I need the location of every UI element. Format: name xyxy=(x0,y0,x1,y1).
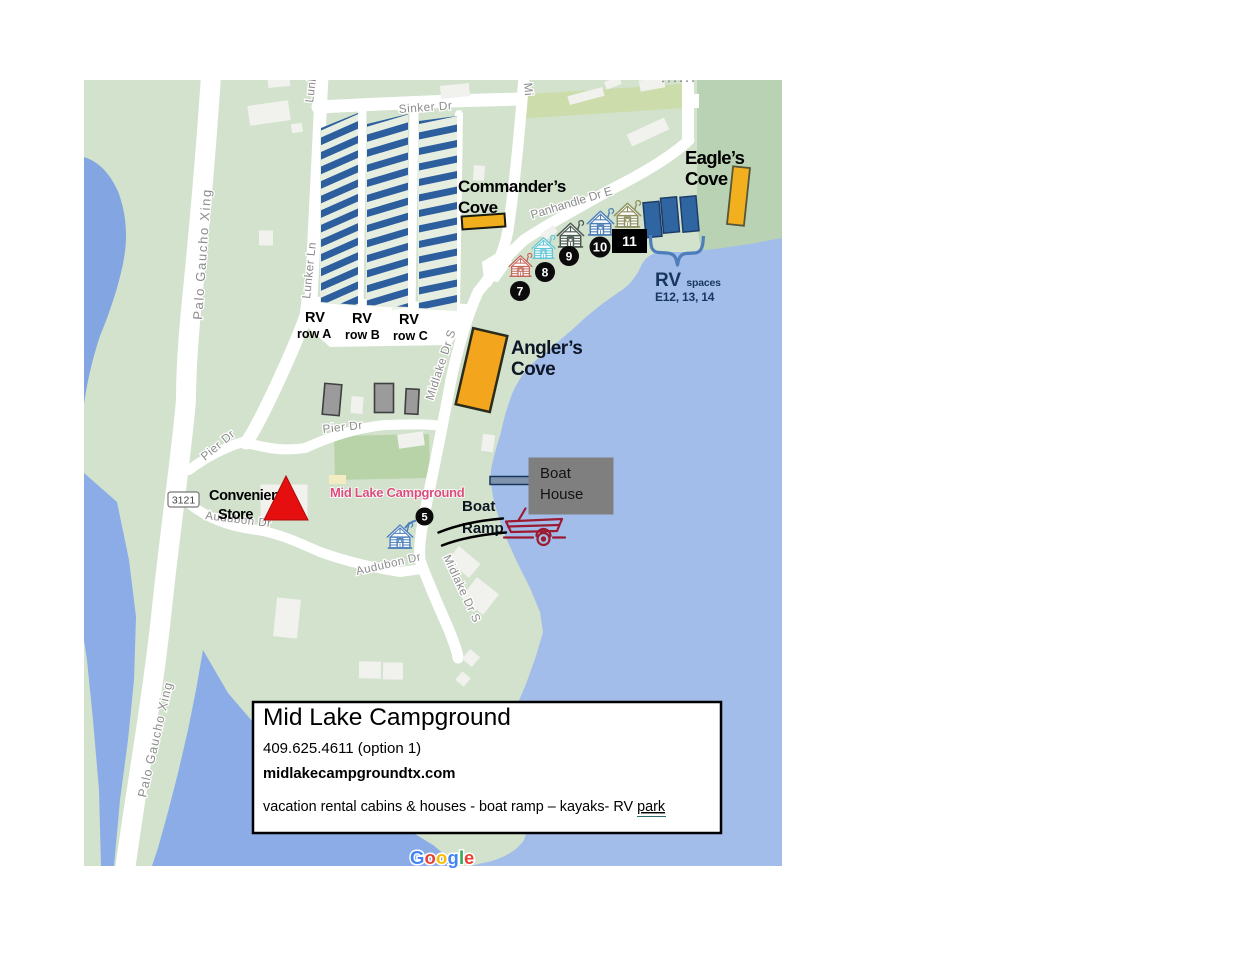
svg-text:Store: Store xyxy=(218,507,253,523)
svg-text:row C: row C xyxy=(393,329,428,343)
svg-text:Cove: Cove xyxy=(685,168,728,189)
svg-text:Commander’s: Commander’s xyxy=(458,177,566,196)
svg-text:3121: 3121 xyxy=(172,495,196,507)
svg-text:7: 7 xyxy=(517,285,524,299)
svg-text:midlakecampgroundtx.com: midlakecampgroundtx.com xyxy=(263,766,455,782)
svg-text:Eagle’s: Eagle’s xyxy=(685,147,745,168)
svg-text:Mid Lake Campground: Mid Lake Campground xyxy=(330,485,465,500)
svg-text:Boat: Boat xyxy=(540,465,572,482)
svg-text:o: o xyxy=(436,847,447,868)
svg-text:G: G xyxy=(410,847,424,868)
svg-text:RV: RV xyxy=(305,310,325,326)
svg-text:e: e xyxy=(464,847,474,868)
svg-text:House: House xyxy=(540,486,583,503)
svg-text:Mid Lake Campground: Mid Lake Campground xyxy=(263,704,511,731)
svg-text:Boat: Boat xyxy=(462,498,495,515)
svg-text:RV: RV xyxy=(352,311,372,327)
svg-text:Mi: Mi xyxy=(521,82,536,97)
svg-text:8: 8 xyxy=(542,266,549,280)
svg-text:RV: RV xyxy=(399,312,419,328)
svg-text:409.625.4611 (option 1): 409.625.4611 (option 1) xyxy=(263,740,421,757)
svg-text:11: 11 xyxy=(622,233,637,249)
svg-text:o: o xyxy=(425,847,436,868)
svg-text:g: g xyxy=(448,847,459,868)
svg-text:row A: row A xyxy=(297,327,331,341)
svg-text:Cove: Cove xyxy=(458,198,498,217)
svg-text:row B: row B xyxy=(345,328,380,342)
svg-text:vacation rental cabins & house: vacation rental cabins & houses - boat r… xyxy=(263,799,666,815)
svg-text:E12, 13, 14: E12, 13, 14 xyxy=(655,290,715,304)
svg-text:5: 5 xyxy=(421,512,427,524)
svg-text:9: 9 xyxy=(566,250,573,264)
svg-text:Cove: Cove xyxy=(511,359,555,380)
svg-text:10: 10 xyxy=(593,240,607,255)
svg-text:Angler’s: Angler’s xyxy=(511,338,582,359)
